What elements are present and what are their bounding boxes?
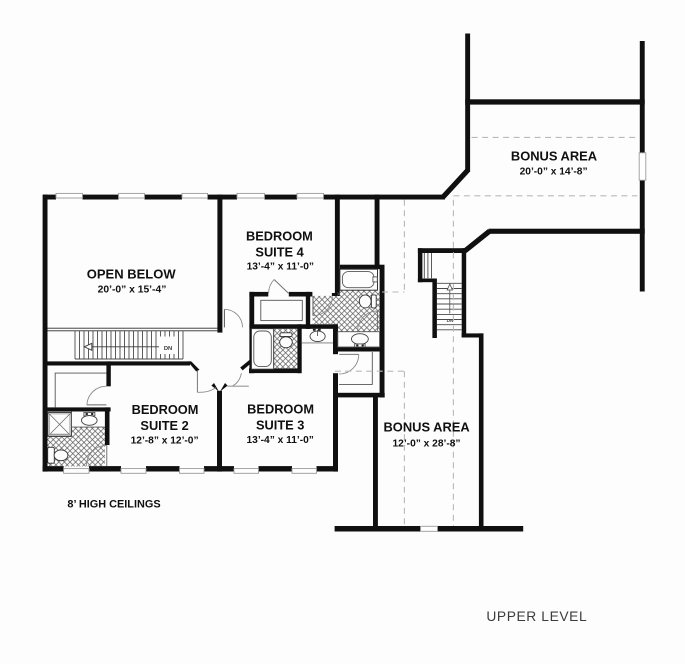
svg-text:UPPER LEVEL: UPPER LEVEL [486, 609, 587, 624]
svg-text:13’-4” x 11’-0”: 13’-4” x 11’-0” [246, 435, 313, 446]
svg-text:12’-0” x 28’-8”: 12’-0” x 28’-8” [393, 439, 461, 450]
svg-text:BEDROOM: BEDROOM [247, 402, 314, 417]
svg-text:13’-4” x 11’-0”: 13’-4” x 11’-0” [247, 262, 314, 273]
svg-text:BONUS AREA: BONUS AREA [511, 149, 597, 164]
svg-text:SUITE 3: SUITE 3 [256, 418, 304, 433]
svg-text:DN: DN [164, 346, 172, 352]
svg-text:SUITE 2: SUITE 2 [140, 418, 188, 433]
svg-text:20’-0” x 15’-4”: 20’-0” x 15’-4” [98, 284, 167, 295]
svg-text:BONUS AREA: BONUS AREA [384, 420, 470, 435]
svg-text:8’ HIGH CEILINGS: 8’ HIGH CEILINGS [67, 499, 160, 511]
svg-text:12’-8” x 12’-0”: 12’-8” x 12’-0” [131, 436, 199, 447]
svg-text:BEDROOM: BEDROOM [246, 229, 313, 244]
svg-text:SUITE 4: SUITE 4 [255, 245, 304, 260]
svg-text:BEDROOM: BEDROOM [132, 402, 199, 417]
svg-text:20’-0” x 14’-8”: 20’-0” x 14’-8” [520, 166, 588, 177]
svg-text:OPEN BELOW: OPEN BELOW [87, 266, 177, 281]
svg-text:DN: DN [447, 318, 454, 323]
